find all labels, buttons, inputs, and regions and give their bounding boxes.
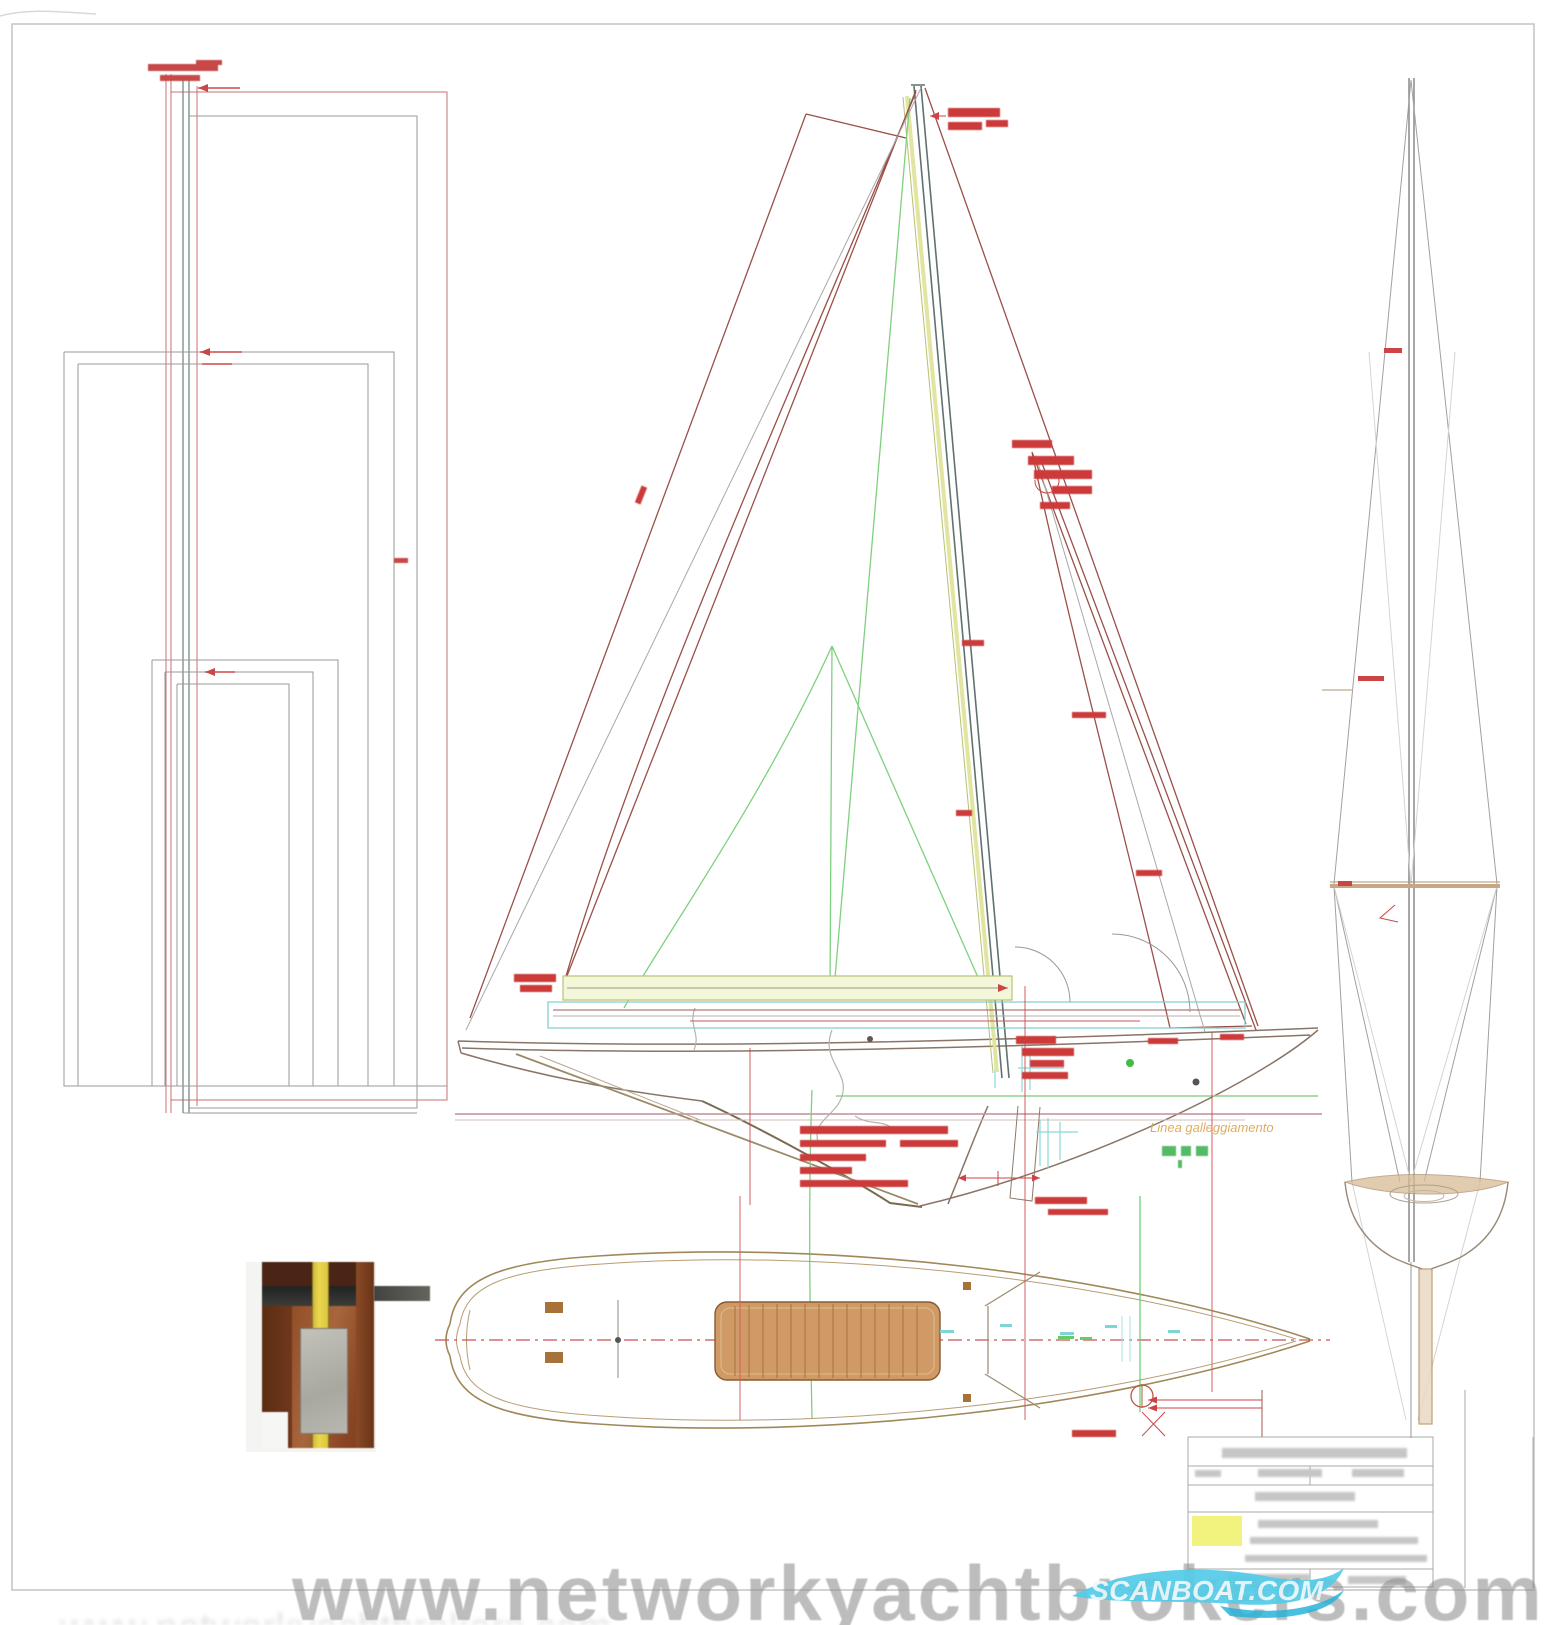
dimension-text-blobs [148, 60, 408, 563]
logo-text: SCANBOAT.COM [1090, 1575, 1324, 1606]
mast-section-lines [183, 80, 189, 1113]
green-dot [1126, 1059, 1134, 1067]
mast-detail-gray-rects [64, 116, 447, 1113]
red-deck-annotations [1035, 1197, 1116, 1437]
hardware-photo [262, 1262, 374, 1448]
hull-profile-outline [458, 1028, 1318, 1206]
mast-yellow-band [907, 96, 997, 1072]
sail-outlines [470, 88, 1258, 1030]
dimension-arrowheads [198, 84, 215, 676]
red-dim-to-titleblock [1142, 1400, 1262, 1436]
drawing-sheet: Linea galleggiamento [0, 0, 1560, 1625]
keel-front-view [1419, 1269, 1432, 1424]
stay-lines [466, 88, 1205, 1032]
green-annotation-blobs [1162, 1146, 1208, 1168]
sail-plan: Linea galleggiamento [455, 85, 1322, 1418]
teal-deck-lines [1122, 1316, 1130, 1362]
dark-dot [1193, 1079, 1200, 1086]
waterline-label: Linea galleggiamento [1150, 1120, 1274, 1135]
traveler-dot [615, 1337, 621, 1343]
shroud-lines [1334, 80, 1497, 1182]
mast-front-view [1322, 78, 1508, 1438]
deck-band [1345, 1175, 1508, 1195]
red-tick-marks [1338, 348, 1402, 886]
deck-plan [435, 1196, 1330, 1437]
dark-dot [867, 1036, 873, 1042]
photo-white-corner [262, 1412, 288, 1448]
photo-bar-extension [374, 1286, 430, 1301]
bilge-line [540, 1056, 700, 1120]
scan-artifact [0, 11, 96, 16]
red-zigzag [1380, 905, 1398, 922]
teal-deck-dashes [940, 1324, 1180, 1335]
yellow-highlight [1192, 1516, 1242, 1546]
spreader-edge [1322, 690, 1500, 882]
dimension-leaders [198, 88, 242, 672]
mast-front-lines [1409, 78, 1414, 1262]
mast-detail-drawing [64, 60, 447, 1113]
cad-drawing: Linea galleggiamento [0, 0, 1560, 1625]
green-rigging-lines [624, 98, 984, 1418]
red-annotation-blobs [514, 108, 1244, 1187]
photo-wood-plank-right [356, 1262, 374, 1448]
photo-metal-plate [300, 1328, 348, 1434]
sheer-band [548, 1002, 1245, 1028]
scanboat-logo: SCANBOAT.COM [1070, 1556, 1350, 1624]
mast-detail-red-lines [166, 74, 447, 1113]
photo-inset [246, 1262, 376, 1452]
red-leader-marks [930, 116, 1059, 493]
hull-section-sides [1345, 1182, 1508, 1269]
mast-lines [911, 85, 1009, 1078]
